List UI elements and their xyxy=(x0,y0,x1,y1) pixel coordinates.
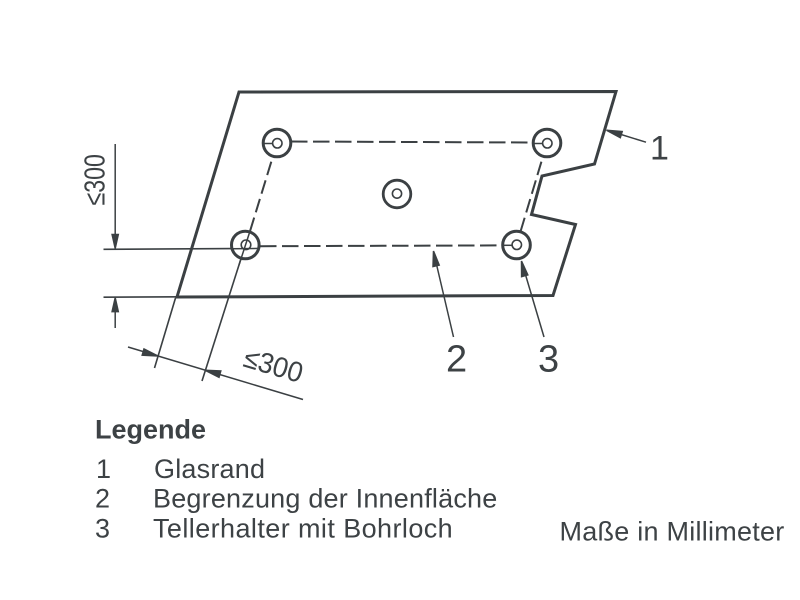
svg-text:Begrenzung der Innenfläche: Begrenzung der Innenfläche xyxy=(153,484,497,514)
svg-text:2: 2 xyxy=(446,339,467,381)
svg-text:2: 2 xyxy=(95,484,110,514)
svg-text:3: 3 xyxy=(95,514,110,544)
svg-text:1: 1 xyxy=(96,454,111,484)
svg-text:Maße in Millimeter: Maße in Millimeter xyxy=(560,517,785,547)
svg-text:3: 3 xyxy=(538,339,559,381)
svg-text:Legende: Legende xyxy=(95,415,206,445)
svg-text:Tellerhalter mit Bohrloch: Tellerhalter mit Bohrloch xyxy=(153,514,453,544)
svg-text:Glasrand: Glasrand xyxy=(154,454,265,484)
svg-text:1: 1 xyxy=(650,130,669,168)
svg-text:≤300: ≤300 xyxy=(78,154,111,205)
svg-text:≤300: ≤300 xyxy=(240,341,307,389)
